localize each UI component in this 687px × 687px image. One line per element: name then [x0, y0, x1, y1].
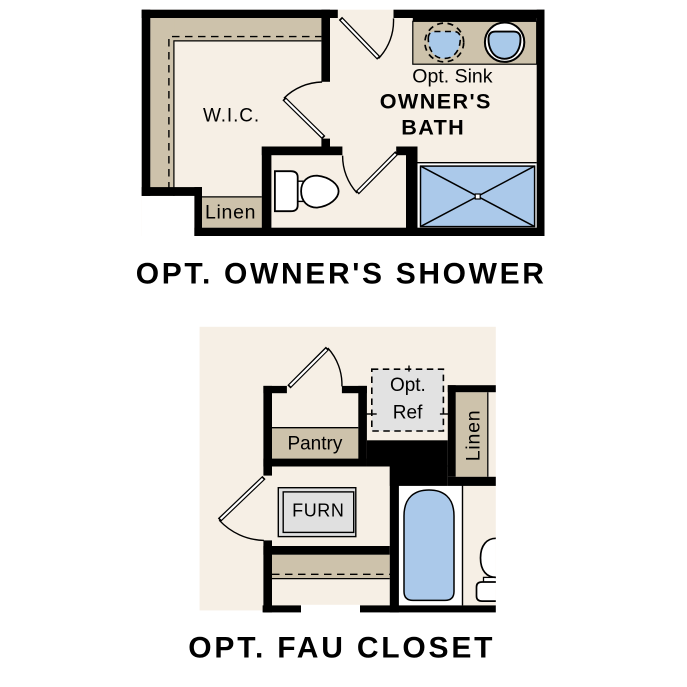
svg-text:Opt. Sink: Opt. Sink [412, 66, 492, 88]
svg-text:OPT. FAU CLOSET: OPT. FAU CLOSET [188, 632, 495, 665]
svg-text:W.I.C.: W.I.C. [203, 105, 260, 126]
svg-text:Linen: Linen [205, 201, 256, 223]
svg-text:OPT. OWNER'S SHOWER: OPT. OWNER'S SHOWER [136, 257, 547, 290]
svg-text:Ref: Ref [393, 403, 423, 424]
svg-text:BATH: BATH [401, 115, 465, 140]
svg-text:Linen: Linen [463, 410, 485, 462]
svg-text:Opt.: Opt. [390, 375, 426, 396]
svg-text:Pantry: Pantry [287, 433, 342, 454]
svg-text:FURN: FURN [292, 501, 344, 521]
svg-text:OWNER'S: OWNER'S [380, 88, 492, 113]
